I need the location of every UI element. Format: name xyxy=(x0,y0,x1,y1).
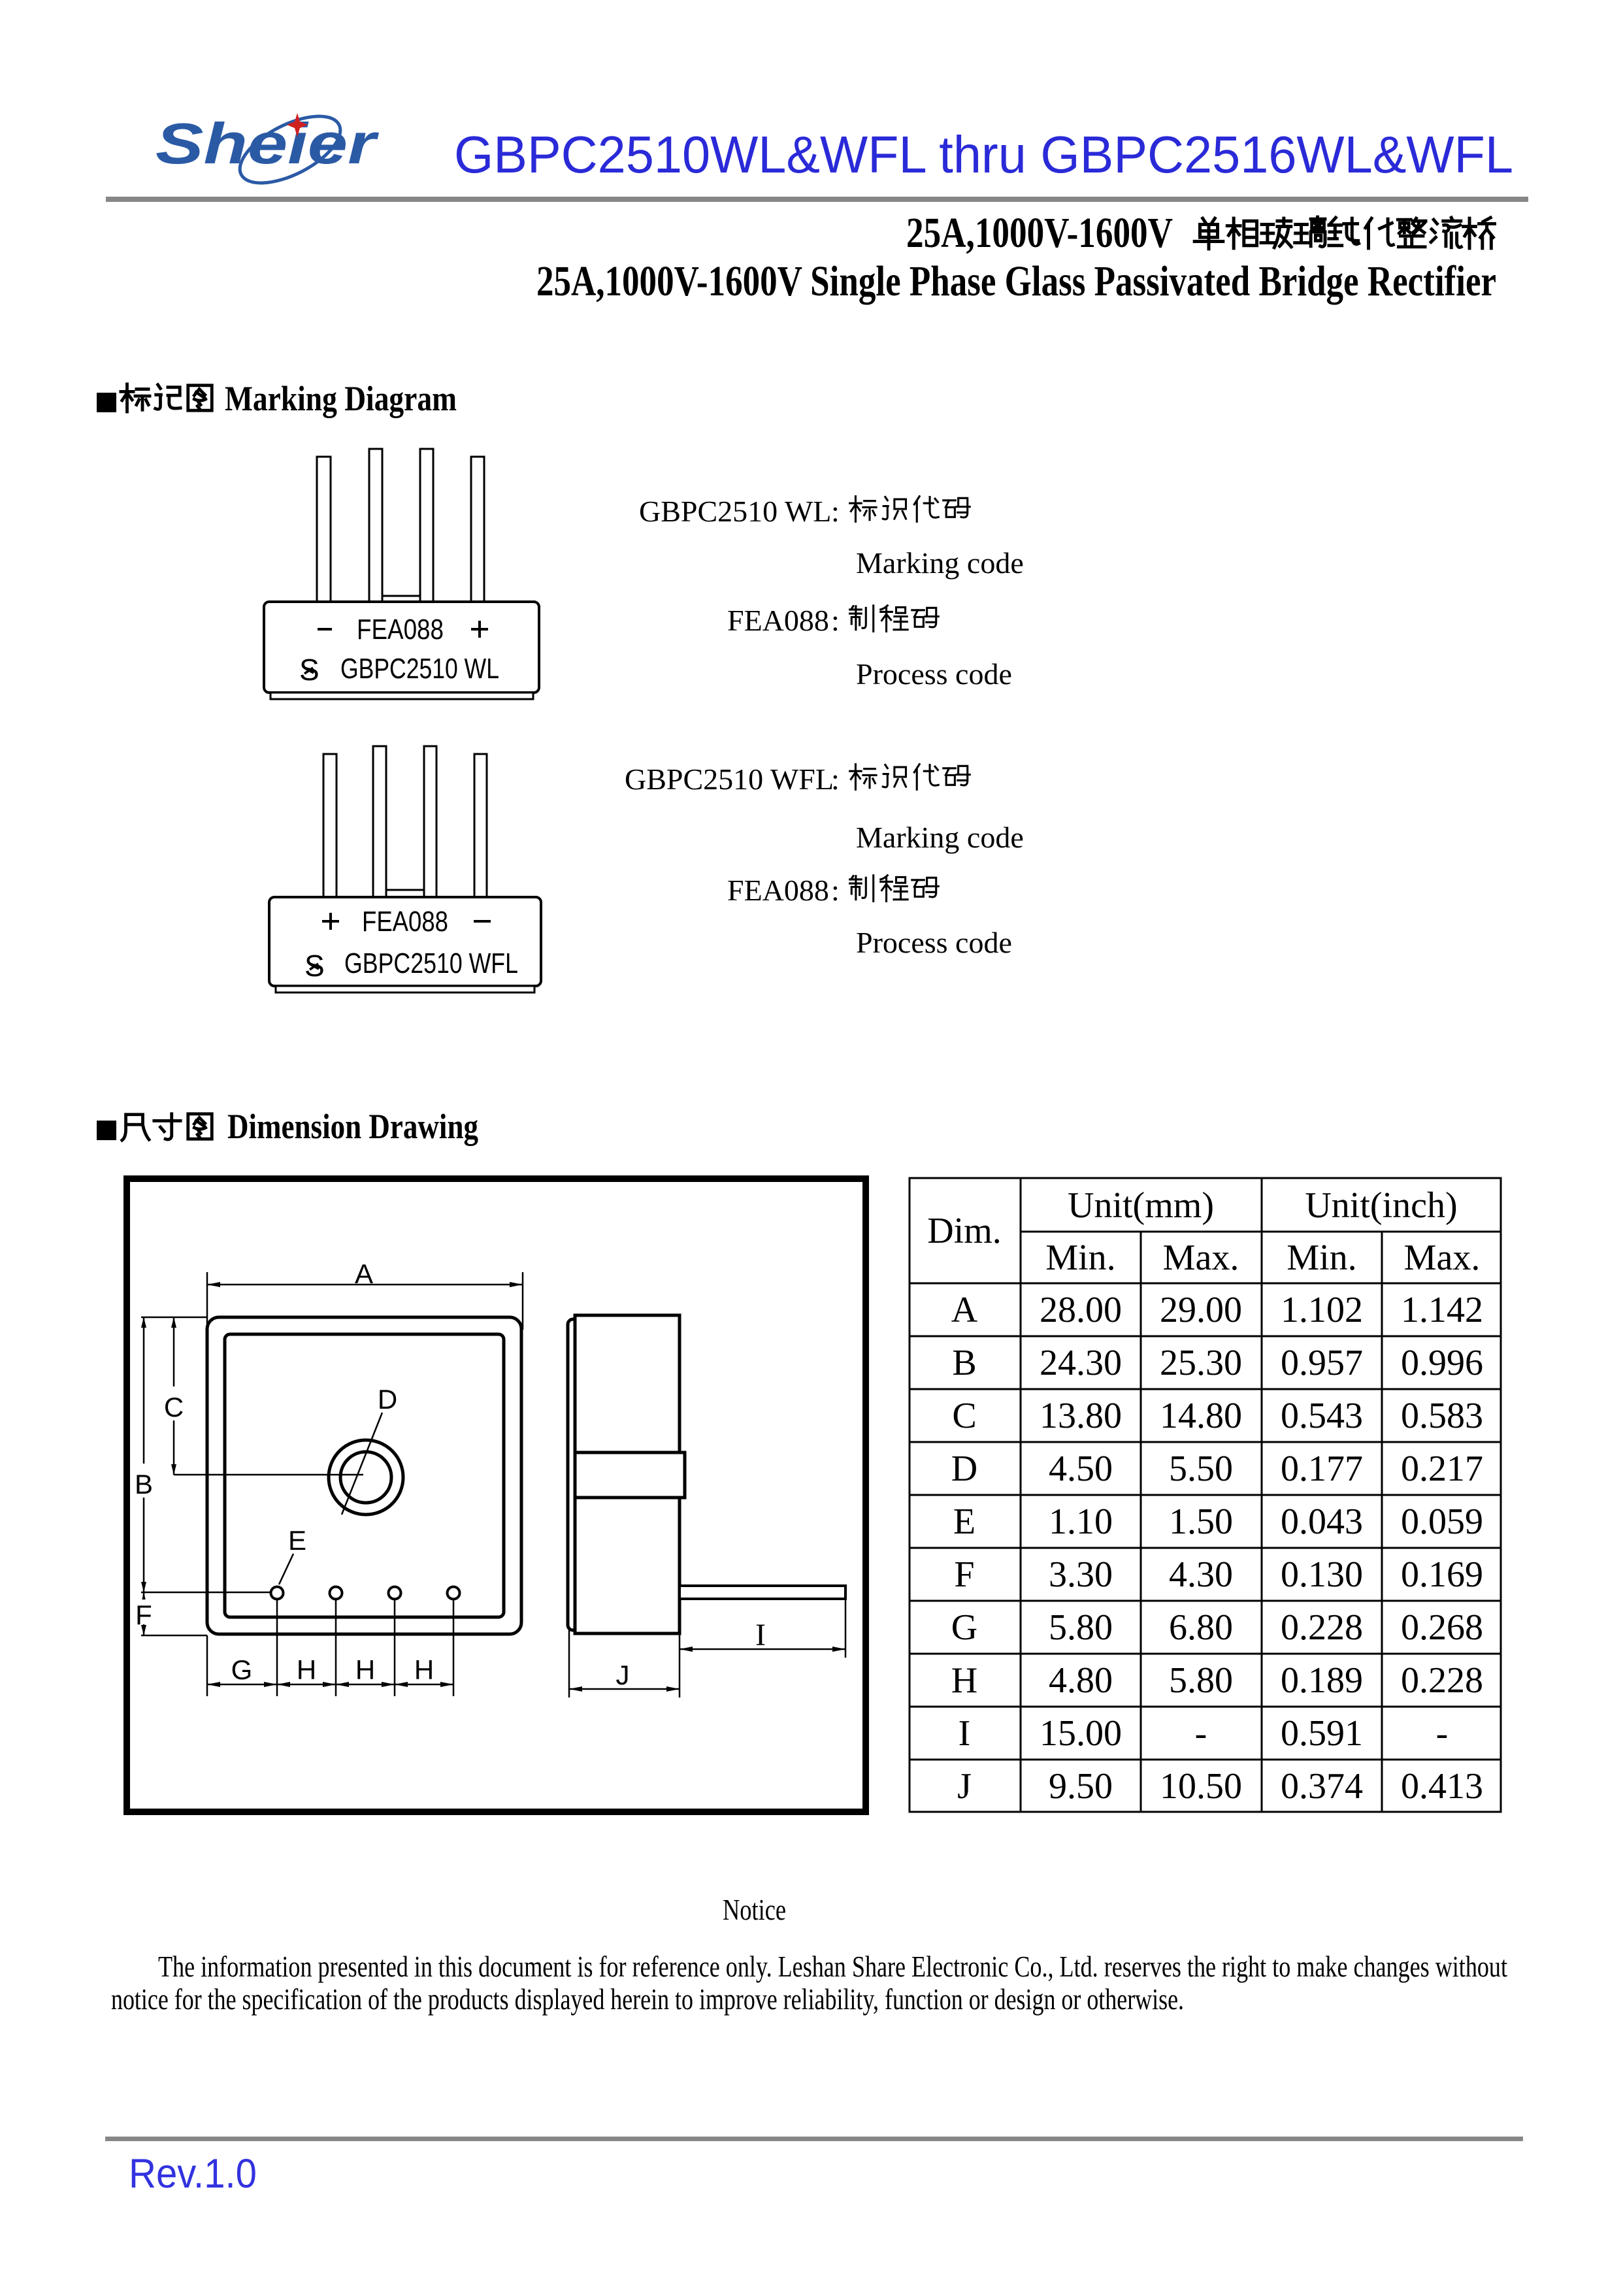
svg-text:0.583: 0.583 xyxy=(1401,1396,1483,1436)
svg-text:Rev.1.0: Rev.1.0 xyxy=(129,2151,257,2197)
svg-text:B: B xyxy=(135,1469,153,1500)
svg-text:A: A xyxy=(951,1290,978,1330)
svg-text:4.30: 4.30 xyxy=(1169,1554,1233,1595)
svg-text:0.169: 0.169 xyxy=(1401,1554,1483,1595)
svg-text:H: H xyxy=(951,1660,977,1701)
svg-text:0.189: 0.189 xyxy=(1281,1660,1363,1701)
svg-text::: : xyxy=(831,604,840,637)
svg-text:25A,1000V-1600V: 25A,1000V-1600V xyxy=(906,209,1173,257)
svg-text:Min.: Min. xyxy=(1287,1238,1356,1278)
svg-text:25.30: 25.30 xyxy=(1160,1343,1242,1383)
svg-text:I: I xyxy=(755,1618,766,1652)
svg-text:E: E xyxy=(288,1525,306,1556)
svg-text:GBPC2510WL&WFL thru GBPC2516WL: GBPC2510WL&WFL thru GBPC2516WL&WFL xyxy=(454,125,1513,184)
svg-text:H: H xyxy=(297,1654,316,1685)
svg-text:5.80: 5.80 xyxy=(1049,1607,1113,1648)
svg-text:J: J xyxy=(957,1766,972,1807)
svg-text:GBPC2510 WL: GBPC2510 WL xyxy=(340,653,499,685)
svg-text:GBPC2510 WFL: GBPC2510 WFL xyxy=(625,763,834,796)
svg-text:Sheier: Sheier xyxy=(156,111,380,176)
svg-text:0.591: 0.591 xyxy=(1281,1713,1363,1754)
svg-text:Unit(inch): Unit(inch) xyxy=(1305,1185,1457,1226)
svg-text:J: J xyxy=(616,1660,630,1690)
svg-text:A: A xyxy=(355,1258,373,1289)
svg-text:FEA088: FEA088 xyxy=(357,614,444,646)
svg-text:5.50: 5.50 xyxy=(1169,1449,1233,1489)
svg-text:Min.: Min. xyxy=(1045,1238,1115,1278)
svg-text:B: B xyxy=(952,1343,976,1383)
svg-text:1.142: 1.142 xyxy=(1401,1290,1483,1330)
svg-text:FEA088: FEA088 xyxy=(727,874,829,907)
svg-text:C: C xyxy=(952,1396,976,1436)
svg-text:Marking code: Marking code xyxy=(856,821,1024,854)
svg-text:25A,1000V-1600V Single Phase G: 25A,1000V-1600V Single Phase Glass Passi… xyxy=(536,257,1496,305)
svg-text:4.80: 4.80 xyxy=(1049,1660,1113,1701)
svg-text:D: D xyxy=(951,1449,977,1489)
svg-text:6.80: 6.80 xyxy=(1169,1607,1233,1648)
svg-text:The information presented in t: The information presented in this docume… xyxy=(158,1950,1507,1983)
svg-text:F: F xyxy=(954,1554,974,1595)
svg-text:G: G xyxy=(231,1654,253,1685)
svg-text:H: H xyxy=(414,1654,434,1685)
svg-text:C: C xyxy=(164,1392,184,1422)
svg-text:28.00: 28.00 xyxy=(1040,1290,1122,1330)
svg-text:13.80: 13.80 xyxy=(1040,1396,1122,1436)
svg-text:15.00: 15.00 xyxy=(1040,1713,1122,1754)
svg-text:Max.: Max. xyxy=(1163,1238,1239,1278)
svg-text:10.50: 10.50 xyxy=(1160,1766,1242,1807)
svg-text:GBPC2510 WL: GBPC2510 WL xyxy=(639,495,831,528)
svg-text:0.177: 0.177 xyxy=(1281,1449,1363,1489)
svg-text:G: G xyxy=(951,1607,977,1648)
svg-text:0.217: 0.217 xyxy=(1401,1449,1483,1489)
svg-text:0.130: 0.130 xyxy=(1281,1554,1363,1595)
svg-text::: : xyxy=(831,763,840,796)
svg-text:Marking Diagram: Marking Diagram xyxy=(225,379,457,418)
svg-text:0.543: 0.543 xyxy=(1281,1396,1363,1436)
svg-text:0.957: 0.957 xyxy=(1281,1343,1363,1383)
svg-text:Process code: Process code xyxy=(856,657,1012,691)
svg-text:0.268: 0.268 xyxy=(1401,1607,1483,1648)
svg-text:I: I xyxy=(959,1713,971,1754)
svg-text:Marking code: Marking code xyxy=(856,546,1024,580)
svg-text:FEA088: FEA088 xyxy=(362,906,448,938)
svg-text:Dimension Drawing: Dimension Drawing xyxy=(227,1107,478,1146)
svg-text:0.228: 0.228 xyxy=(1401,1660,1483,1701)
svg-text:9.50: 9.50 xyxy=(1049,1766,1113,1807)
svg-text:14.80: 14.80 xyxy=(1160,1396,1242,1436)
svg-text:29.00: 29.00 xyxy=(1160,1290,1242,1330)
svg-text:1.50: 1.50 xyxy=(1169,1501,1233,1542)
svg-text:F: F xyxy=(135,1599,152,1630)
svg-text::: : xyxy=(831,495,840,528)
svg-text::: : xyxy=(831,874,840,907)
svg-text:0.228: 0.228 xyxy=(1281,1607,1363,1648)
svg-text:24.30: 24.30 xyxy=(1040,1343,1122,1383)
svg-text:-: - xyxy=(1195,1713,1207,1754)
svg-text:1.102: 1.102 xyxy=(1281,1290,1363,1330)
svg-text:FEA088: FEA088 xyxy=(727,604,829,637)
svg-text:GBPC2510 WFL: GBPC2510 WFL xyxy=(344,947,518,979)
svg-text:0.374: 0.374 xyxy=(1281,1766,1363,1807)
svg-text:Process code: Process code xyxy=(856,926,1012,959)
svg-text:Notice: Notice xyxy=(723,1893,786,1926)
svg-text:Dim.: Dim. xyxy=(927,1211,1002,1251)
svg-text:4.50: 4.50 xyxy=(1049,1449,1113,1489)
svg-text:5.80: 5.80 xyxy=(1169,1660,1233,1701)
svg-text:Max.: Max. xyxy=(1404,1238,1481,1278)
svg-text:notice for the specification o: notice for the specification of the prod… xyxy=(111,1982,1184,2016)
svg-text:0.043: 0.043 xyxy=(1281,1501,1363,1542)
svg-text:H: H xyxy=(355,1654,375,1685)
svg-text:E: E xyxy=(953,1501,975,1542)
svg-text:0.996: 0.996 xyxy=(1401,1343,1483,1383)
svg-text:-: - xyxy=(1436,1713,1449,1754)
svg-text:0.413: 0.413 xyxy=(1401,1766,1483,1807)
svg-text:D: D xyxy=(378,1384,397,1415)
svg-text:0.059: 0.059 xyxy=(1401,1501,1483,1542)
svg-text:1.10: 1.10 xyxy=(1049,1501,1113,1542)
svg-text:3.30: 3.30 xyxy=(1049,1554,1113,1595)
svg-text:Unit(mm): Unit(mm) xyxy=(1068,1185,1214,1226)
